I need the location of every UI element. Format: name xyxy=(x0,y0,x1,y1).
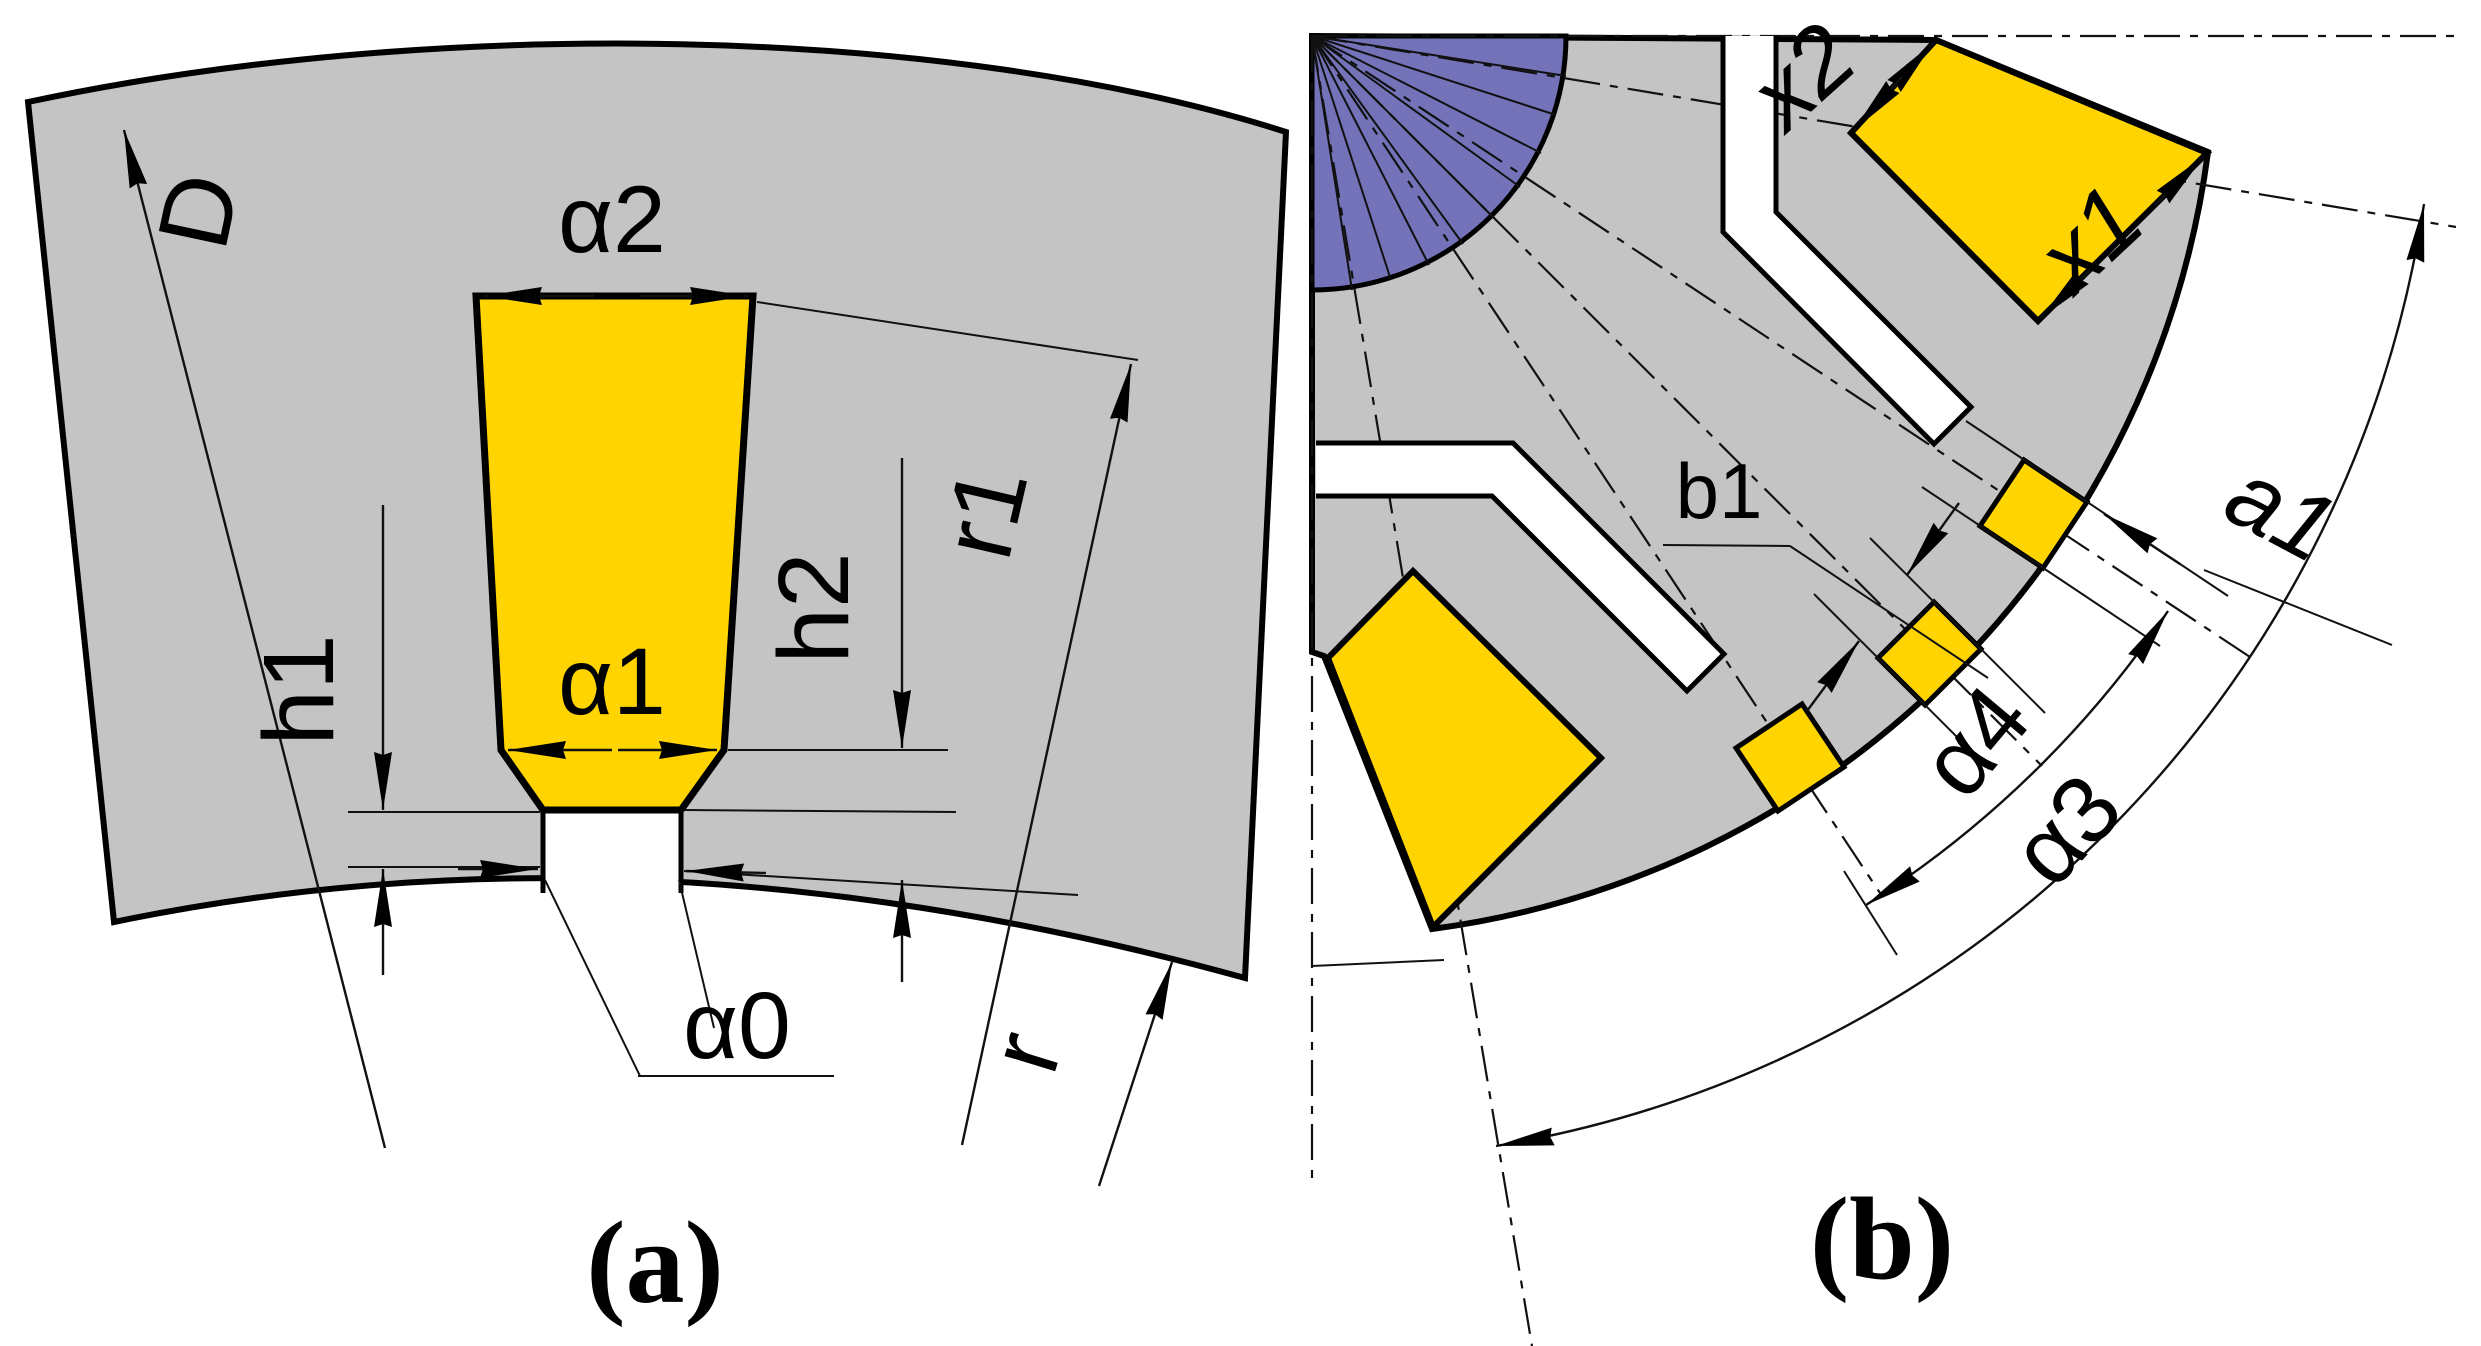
panel-b: x2 x1 b1 a1 α4 α3 (b) xyxy=(1312,3,2462,1346)
dim-line-r xyxy=(1099,962,1172,1186)
figure-canvas: D α2 r1 h1 h2 α1 α0 r xyxy=(0,0,2481,1346)
ext-line-alpha3-bottom xyxy=(1312,960,1444,966)
slot-opening xyxy=(543,810,681,893)
label-alpha1: α1 xyxy=(558,629,666,735)
dim-arrow-a1 xyxy=(2104,514,2180,564)
label-r: r xyxy=(967,1020,1084,1085)
caption-a: (a) xyxy=(586,1197,724,1328)
panel-a: D α2 r1 h1 h2 α1 α0 r xyxy=(28,44,1286,1328)
leader-b1-underline xyxy=(1663,545,1790,546)
label-alpha2: α2 xyxy=(558,167,666,273)
label-h1: h1 xyxy=(243,634,355,745)
leader-alpha0-left xyxy=(545,880,640,1076)
label-h2: h2 xyxy=(758,552,870,663)
label-alpha0: α0 xyxy=(683,973,791,1079)
ext-line-alpha4 xyxy=(1844,871,1897,955)
caption-b: (b) xyxy=(1810,1173,1954,1304)
figure-svg: D α2 r1 h1 h2 α1 α0 r xyxy=(0,0,2481,1346)
label-b1: b1 xyxy=(1676,447,1763,535)
leader-a1-underline xyxy=(2204,570,2392,645)
